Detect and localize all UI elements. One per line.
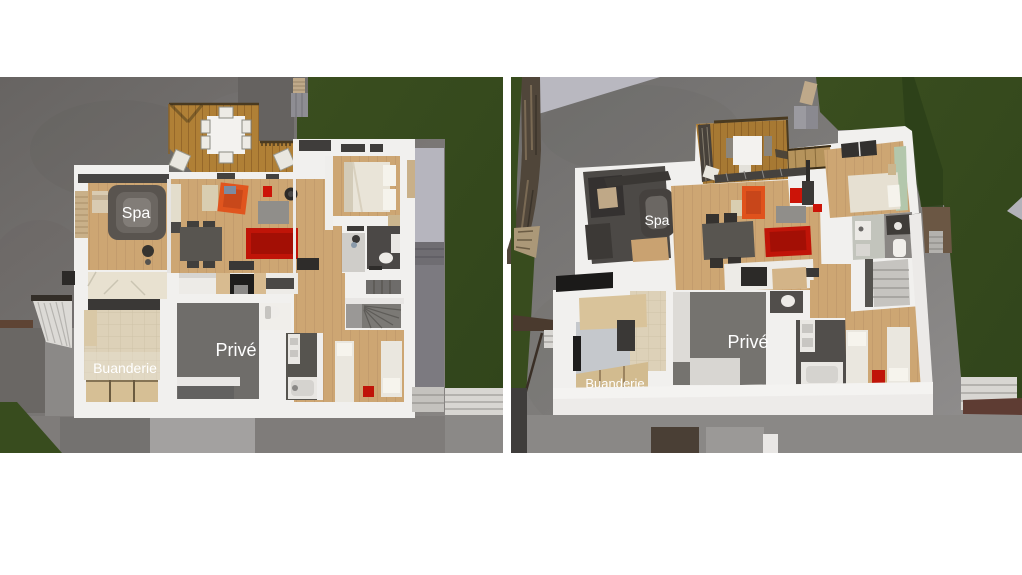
svg-text:Spa: Spa	[122, 205, 151, 222]
svg-text:Buanderie: Buanderie	[93, 360, 157, 376]
svg-text:Privé: Privé	[215, 340, 256, 360]
svg-text:Spa: Spa	[645, 212, 670, 228]
svg-text:Privé: Privé	[727, 332, 768, 352]
